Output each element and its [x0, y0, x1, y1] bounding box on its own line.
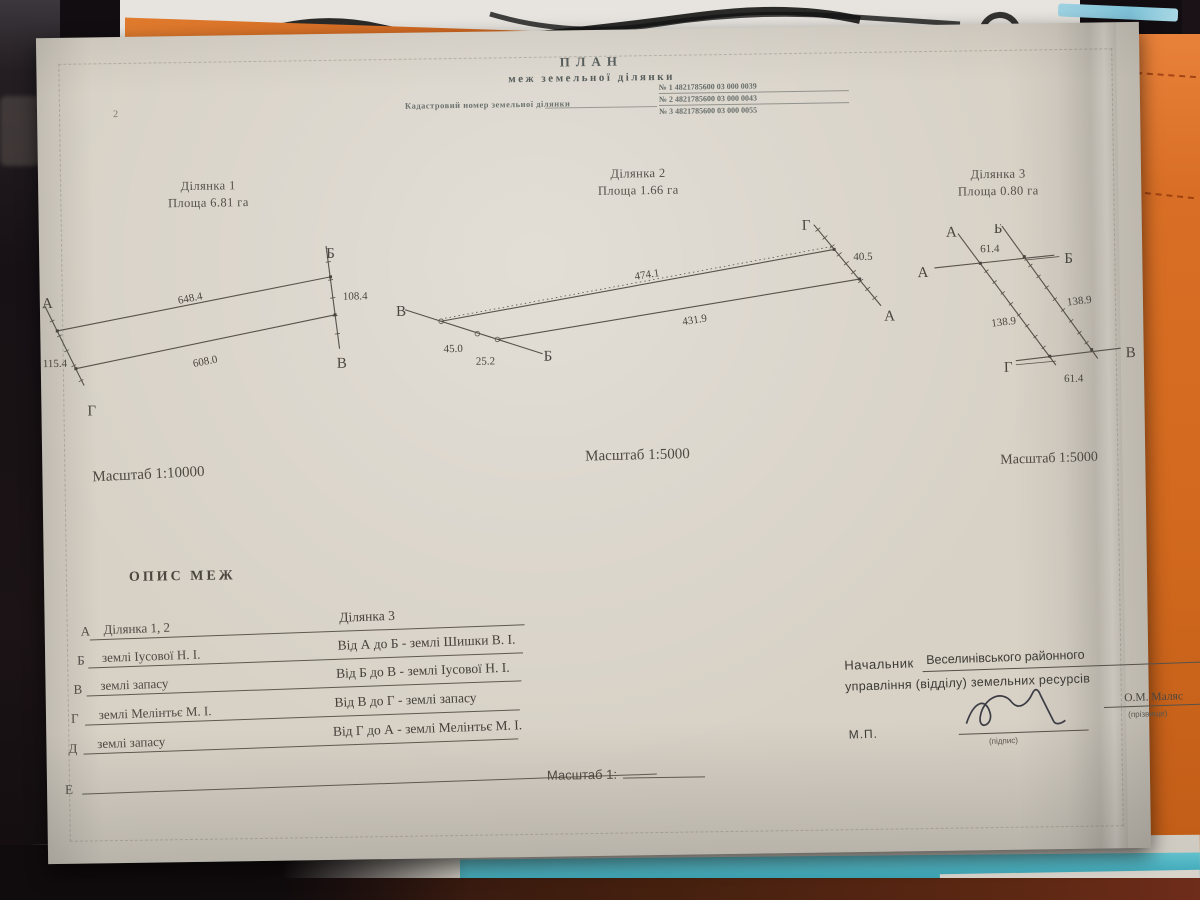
parcel-3-title: Ділянка 3 Площа 0.80 га [913, 165, 1083, 202]
desc-g-col2: Від В до Г - землі запасу [334, 690, 477, 711]
desc-letter-g: Г [71, 711, 79, 727]
desc-v-col2: Від Б до В - землі Іусової Н. І. [336, 660, 510, 682]
parcel-3-side-left: 138.9 [991, 315, 1018, 330]
parcel-1-side-left: 115.4 [43, 358, 68, 370]
desc-b-col1: землі Іусової Н. І. [102, 647, 201, 666]
cadastral-numbers: № 1 4821785600 03 000 0039 № 2 482178560… [659, 79, 849, 117]
desc-letter-b: Б [77, 653, 85, 669]
parcel-3-corner-right-b: Б [1064, 251, 1073, 267]
seal-placeholder: М.П. [848, 727, 878, 742]
parcel-3-side-top: 61.4 [980, 243, 1000, 255]
parcel-3-corner-top-a: А [946, 225, 957, 241]
cadastral-rule [545, 92, 657, 109]
desc-a-col2: Ділянка 3 [339, 608, 395, 626]
parcel-2-seg-a: 45.0 [444, 343, 464, 355]
parcel-3-corner-g: Г [1004, 360, 1013, 376]
parcel-1-corner-a: А [42, 296, 53, 312]
surname-caption: (прізвище) [1128, 709, 1168, 719]
parcel-1-title: Ділянка 1 Площа 6.81 га [123, 176, 293, 213]
parcel-2-seg-b: 25.2 [476, 355, 495, 367]
parcel-1-area: Площа 6.81 га [123, 193, 293, 213]
scale-blank: Масштаб 1: [547, 764, 705, 782]
parcel-2-side-bottom: 431.9 [681, 312, 708, 328]
parcel-2-corner-left: В [396, 304, 406, 320]
desc-d-col1: землі запасу [97, 734, 166, 752]
parcel-3-corner-left-a: А [917, 265, 928, 281]
parcel-2-corner-bottom: Б [544, 349, 553, 365]
parcel-2-side-right: 40.5 [853, 251, 873, 263]
parcel-3-diagram: А Б А Б Г В 61.4 138.9 138.9 61.4 [914, 221, 1187, 405]
desc-v-col1: землі запасу [100, 676, 169, 694]
parcel-2-scale: Масштаб 1:5000 [585, 446, 690, 465]
parcel-3-scale: Масштаб 1:5000 [1000, 450, 1098, 469]
parcel-1-corner-b: Б [326, 246, 335, 262]
parcel-1-right-hatches [326, 261, 340, 334]
parcel-1-corner-g: Г [87, 403, 96, 419]
parcel-3-side-bottom: 61.4 [1064, 373, 1084, 385]
official-surname: О.М. Маляс [1103, 690, 1200, 708]
parcel-2-corner-right: А [884, 309, 895, 325]
description-heading: ОПИС МЕЖ [129, 568, 236, 586]
desc-d-col2: Від Г до А - землі Мелінтьє М. І. [333, 717, 523, 740]
signature-line [958, 694, 1089, 735]
parcel-1-side-right: 108.4 [343, 290, 368, 302]
desc-letter-e: Е [65, 782, 73, 798]
folder-stitching [1136, 72, 1196, 78]
parcel-2-title: Ділянка 2 Площа 1.66 га [553, 164, 723, 201]
parcel-2-corner-top-right: Г [802, 218, 811, 234]
parcel-2-side-top: 474.1 [634, 267, 660, 283]
folder-stitching [1134, 191, 1194, 199]
parcel-1-diagram: А Б В Г 648.4 608.0 115.4 108.4 [39, 243, 387, 433]
page-number: 2 [113, 109, 118, 120]
desc-a-col1: Ділянка 1, 2 [103, 620, 170, 638]
official-block: Начальник Веселинівського районного упра… [844, 645, 1200, 777]
desc-g-col1: землі Мелінтьє М. І. [98, 703, 211, 723]
signature-scribble [951, 680, 1082, 730]
parcel-1-side-bottom: 608.0 [192, 353, 219, 370]
parcel-3-area: Площа 0.80 га [913, 182, 1083, 202]
scale-blank-line [623, 764, 705, 778]
desc-letter-d: Д [68, 741, 77, 757]
desc-b-col2: Від А до Б - землі Шишки В. І. [337, 632, 515, 654]
scale-blank-label: Масштаб 1: [547, 767, 617, 783]
desc-letter-v: В [73, 682, 82, 698]
parcel-1-corner-v: В [337, 356, 347, 372]
backdrop-left-highlight [0, 96, 40, 166]
signature-caption: (підпис) [989, 736, 1018, 746]
parcel-3-side-right: 138.9 [1066, 294, 1093, 309]
parcel-3-corner-v: В [1126, 345, 1136, 361]
parcel-1-side-top: 648.4 [177, 290, 204, 307]
photo-scene: 2 ПЛАН меж земельної ділянки Кадастровий… [0, 0, 1200, 900]
plan-document-sheet: 2 ПЛАН меж земельної ділянки Кадастровий… [36, 22, 1151, 864]
official-role: Начальник [844, 655, 914, 672]
parcel-2-diagram: В Б Г А 474.1 431.9 45.0 25.2 40.5 [394, 215, 941, 388]
parcel-3-corner-top-b: Б [994, 221, 1003, 237]
parcel-2-area: Площа 1.66 га [553, 181, 723, 201]
